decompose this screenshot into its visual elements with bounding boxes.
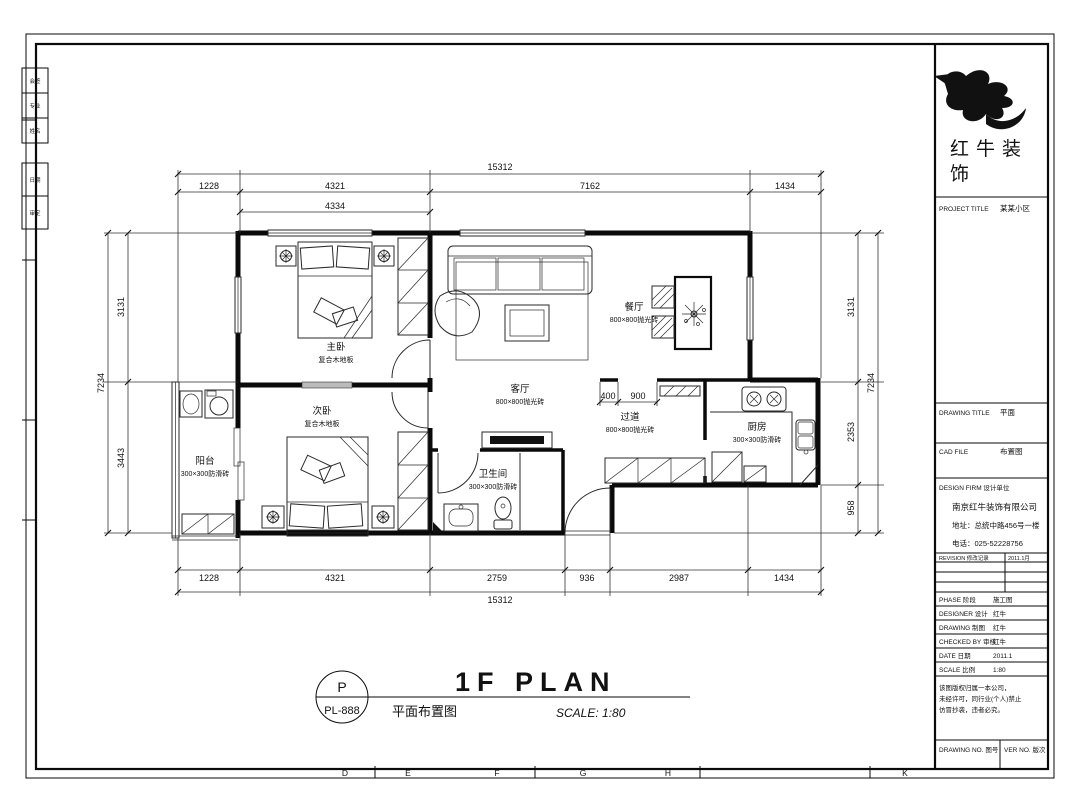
dim-text: 1228 (199, 181, 219, 191)
side-cell-label: 姓名 (29, 127, 40, 135)
company-logo (934, 70, 1026, 129)
washing-machine (205, 390, 233, 418)
row-label: CHECKED BY 审核 (939, 637, 996, 646)
row-value: 红牛 (993, 623, 1007, 632)
room-name: 阳台 (195, 455, 214, 467)
wardrobe (398, 432, 428, 530)
firm-label: DESIGN FIRM 设计单位 (939, 483, 1010, 492)
dim-text: 2987 (669, 573, 689, 583)
room-finish: 复合木地板 (319, 355, 354, 364)
room-name: 餐厅 (624, 301, 644, 313)
dim-text: 7234 (96, 373, 106, 393)
entry-sill (565, 531, 610, 535)
revision-header-left: REVISION 修改记录 (939, 554, 989, 562)
firm-name: 南京红牛装饰有限公司 (952, 502, 1037, 512)
drawing-sheet: 会签 专业 姓名 日期 审定 D E F G H K (0, 0, 1080, 810)
room-name: 厨房 (747, 421, 766, 433)
fridge (712, 452, 742, 482)
side-cell-label: 审定 (29, 209, 41, 217)
dim-text: 15312 (487, 595, 512, 605)
row-label: PHASE 阶段 (939, 595, 976, 604)
room-name: 主卧 (326, 341, 346, 353)
kitchen-pocket-door (660, 386, 700, 396)
room-finish: 800×800抛光砖 (606, 425, 654, 434)
marker-letter: P (337, 679, 346, 695)
drawing-title-value: 平面 (1000, 408, 1015, 417)
title-bar: P PL-888 1F PLAN 平面布置图 SCALE: 1:80 (316, 667, 690, 723)
dim-text: 3131 (116, 297, 126, 317)
row-value: 1:80 (993, 667, 1006, 674)
firm-address: 地址：总统中路456号一楼 (952, 520, 1040, 530)
dim-text: 400 (600, 391, 615, 401)
dim-text: 7234 (866, 373, 876, 393)
dimensions-interior: 400 900 (597, 382, 660, 406)
grid-letter: F (494, 768, 499, 778)
dim-text: 7162 (580, 181, 600, 191)
note-line: 仿冒抄袭，违者必究。 (939, 705, 1004, 714)
row-label: DESIGNER 设计 (939, 609, 988, 618)
dim-text: 1434 (774, 573, 794, 583)
grid-letter: E (405, 768, 411, 778)
project-title-value: 某某小区 (1000, 204, 1030, 213)
row-label: DATE 日期 (939, 652, 971, 660)
window-master-top (268, 230, 372, 236)
row-value: 红牛 (993, 637, 1007, 646)
note-line: 未经许可，同行业(个人)禁止 (939, 694, 1022, 703)
row-value: 施工图 (993, 595, 1013, 604)
balcony-sliding-door (234, 428, 244, 500)
entry-door (565, 488, 610, 533)
room-finish: 300×300防滑砖 (733, 435, 781, 444)
dim-text: 900 (630, 391, 645, 401)
drawing-scale: SCALE: 1:80 (556, 706, 626, 720)
row-value: 2011.1 (993, 653, 1013, 660)
dim-text: 3131 (846, 297, 856, 317)
row-value: 红牛 (993, 609, 1007, 618)
shoe-cabinet (605, 458, 705, 483)
dining-furniture (652, 277, 711, 349)
bedroom2-door (392, 392, 428, 428)
dim-text: 4321 (325, 181, 345, 191)
dining-chair (652, 286, 674, 308)
toilet (494, 497, 512, 529)
file-value: 布置图 (1000, 446, 1023, 456)
side-cell-label: 会签 (29, 77, 41, 85)
second-bedroom-furniture (262, 432, 428, 530)
drawing-title: 1F PLAN (455, 667, 617, 697)
dimensions-left: 3131 3443 7234 (96, 230, 238, 536)
title-block: 红牛装 饰 PROJECT TITLE 某某小区 DRAWING TITLE 平… (934, 44, 1048, 769)
dim-text: 1434 (775, 181, 795, 191)
wardrobe (398, 238, 428, 335)
revision-header-right: 2011.1月 (1008, 555, 1030, 562)
note-line: 该图版权归属一本公司， (939, 683, 1011, 692)
master-door (392, 340, 430, 378)
sink (796, 420, 815, 454)
dim-text: 958 (846, 500, 856, 515)
coffee-table (505, 305, 549, 341)
version-label: VER NO. 版次 (1004, 745, 1046, 754)
room-name: 客厅 (510, 383, 530, 395)
dim-text: 4321 (325, 573, 345, 583)
room-name: 次卧 (312, 405, 332, 417)
stove (742, 387, 786, 411)
row-label: SCALE 比例 (939, 665, 975, 674)
console-cabinet (482, 432, 552, 448)
dim-text: 2353 (846, 422, 856, 442)
armchair (435, 291, 480, 336)
balcony-cabinet (182, 514, 234, 534)
room-name: 过道 (620, 411, 640, 423)
plan-canvas: 会签 专业 姓名 日期 审定 D E F G H K (0, 0, 1080, 810)
room-finish: 300×300防滑砖 (181, 469, 229, 478)
side-cell-label: 日期 (29, 177, 41, 184)
drawing-no-label: DRAWING NO. 图号 (939, 746, 999, 754)
dim-text: 4334 (325, 201, 345, 211)
logo-text-line1: 红牛装 (950, 138, 1028, 160)
hallway-furniture (482, 432, 705, 483)
window-dining-right (747, 277, 753, 340)
project-title-label: PROJECT TITLE (939, 206, 989, 213)
dim-text: 1228 (199, 573, 219, 583)
master-bedroom-furniture (276, 238, 428, 338)
drawing-title-label: DRAWING TITLE (939, 410, 990, 417)
room-name: 卫生间 (479, 468, 508, 480)
dim-text: 3443 (116, 448, 126, 468)
living-room-furniture (435, 246, 592, 360)
firm-phone: 电话：025-52228756 (952, 538, 1023, 548)
logo-text-line2: 饰 (950, 163, 976, 185)
room-finish: 800×800抛光砖 (496, 397, 544, 406)
side-cell-label: 专业 (29, 102, 41, 110)
marker-number: PL-888 (324, 705, 359, 717)
room-finish: 300×300防滑砖 (469, 482, 517, 491)
dim-text: 15312 (487, 162, 512, 172)
grid-letter: G (580, 768, 587, 778)
dim-text: 936 (579, 573, 594, 583)
drawing-subtitle: 平面布置图 (392, 704, 457, 719)
grid-letter: H (665, 768, 671, 778)
plant (682, 302, 706, 326)
row-label: DRAWING 制图 (939, 623, 985, 632)
room-finish: 800×800抛光砖 (610, 315, 658, 324)
kitchen-furniture (710, 387, 815, 483)
dimensions-top: 15312 1228 4321 7162 1434 4334 (175, 162, 824, 382)
mop-sink (180, 391, 202, 417)
grid-letter: K (902, 768, 908, 778)
dim-text: 2759 (487, 573, 507, 583)
vanity-sink (444, 504, 478, 531)
grid-letter: D (342, 768, 348, 778)
file-label: CAD FILE (939, 449, 969, 456)
window-master-left (235, 277, 241, 333)
window-living-top (460, 230, 585, 236)
dimensions-bottom: 1228 4321 2759 936 2987 1434 15312 (175, 485, 824, 605)
sofa (448, 246, 592, 294)
room-finish: 复合木地板 (305, 419, 340, 428)
